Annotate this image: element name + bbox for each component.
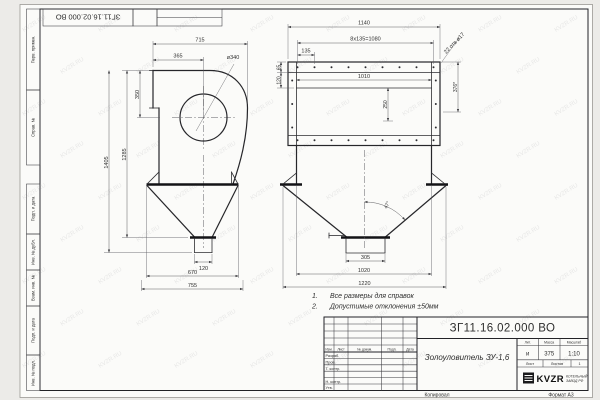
logo-text: KVZR xyxy=(537,374,564,385)
dim-dia-340: ø340 xyxy=(227,55,240,61)
stamp-doc-number: ЗГ11.16.02.000 ВО xyxy=(56,13,121,22)
note-2-number: 2. xyxy=(311,304,318,311)
tb-row-nkontr: Н. контр. xyxy=(326,380,342,384)
dim-670: 670 xyxy=(188,270,197,276)
margin-label-podp-data-1: Подп. и дата xyxy=(31,196,36,221)
dim-305: 305 xyxy=(361,255,370,261)
dim-376: 376* xyxy=(453,82,459,92)
tb-row-prov: Пров. xyxy=(326,361,336,365)
margin-label-inv-podl: Инв. № подл. xyxy=(31,360,36,386)
drawing-sheet: KVZR.RUKVZR.RUKVZR.RUKVZR.RUKVZR.RUKVZR.… xyxy=(0,0,600,400)
dim-1140: 1140 xyxy=(358,21,370,27)
margin-label-perv-primen: Перв. примен. xyxy=(31,36,36,64)
tb-mass-value: 375 xyxy=(544,352,555,358)
dim-350: 350 xyxy=(135,90,141,99)
tb-row-razrab: Разраб. xyxy=(326,354,340,358)
dim-120: 120 xyxy=(199,266,208,272)
dim-1285: 1285 xyxy=(122,148,128,160)
tb-col-list: Лист xyxy=(337,347,345,351)
dim-1405: 1405 xyxy=(104,156,110,168)
logo-subtext-2: ЗАВОД РФ xyxy=(566,379,584,383)
tb-sheets-label: Листов xyxy=(551,362,563,366)
dim-365: 365 xyxy=(173,54,182,60)
dim-135: 135 xyxy=(301,49,310,55)
tb-part-name: Золоуловитель ЗУ-1,6 xyxy=(425,353,510,362)
note-2-text: Допустимые отклонения ±50мм xyxy=(329,304,439,311)
tb-col-podp: Подп. xyxy=(387,347,396,351)
tb-sheet-label: Лист xyxy=(526,362,535,366)
tb-sheets-value: 1 xyxy=(578,362,580,366)
tb-row-utv: Утв. xyxy=(326,386,333,390)
blueprint-page: KVZR.RUKVZR.RUKVZR.RUKVZR.RUKVZR.RUKVZR.… xyxy=(0,0,600,400)
tb-col-data: Дата xyxy=(406,347,414,351)
dim-1220: 1220 xyxy=(358,281,370,287)
dim-250: 250 xyxy=(383,100,389,109)
footer-format: Формат А3 xyxy=(548,393,573,399)
margin-label-vzam-inv: Взам. инв. № xyxy=(31,275,36,301)
logo-subtext-1: КОТЕЛЬНЫЙ xyxy=(566,375,588,379)
tb-row-tkontr: Т. контр. xyxy=(326,367,341,371)
dim-65: 65 xyxy=(277,65,283,71)
margin-label-sprav-no: Справ. № xyxy=(31,117,36,137)
tb-mass-label: Масса xyxy=(544,341,554,345)
dim-715: 715 xyxy=(195,38,204,44)
margin-label-podp-data-2: Подп. и дата xyxy=(31,317,36,342)
tb-lit-value: и xyxy=(526,352,529,358)
note-1-number: 1. xyxy=(312,293,318,300)
dim-8x135: 8x135=1080 xyxy=(350,37,380,43)
tb-doc-number: ЗГ11.16.02.000 ВО xyxy=(450,323,556,335)
dim-1010: 1010 xyxy=(358,74,370,80)
note-1-text: Все размеры для справок xyxy=(330,292,415,300)
tb-scale-value: 1:10 xyxy=(568,352,580,358)
margin-label-inv-dubl: Инв. № дубл. xyxy=(31,239,36,265)
footer-copied: Копировал xyxy=(424,393,449,399)
tb-lit-label: Лит. xyxy=(525,341,531,345)
tb-scale-label: Масштаб xyxy=(567,341,582,345)
tb-col-dokum: № докум. xyxy=(357,347,372,351)
dim-755: 755 xyxy=(188,283,197,289)
tb-col-izm: Изм. xyxy=(325,347,332,351)
dim-120-front: 120 xyxy=(277,76,283,85)
dim-1020: 1020 xyxy=(358,268,370,274)
